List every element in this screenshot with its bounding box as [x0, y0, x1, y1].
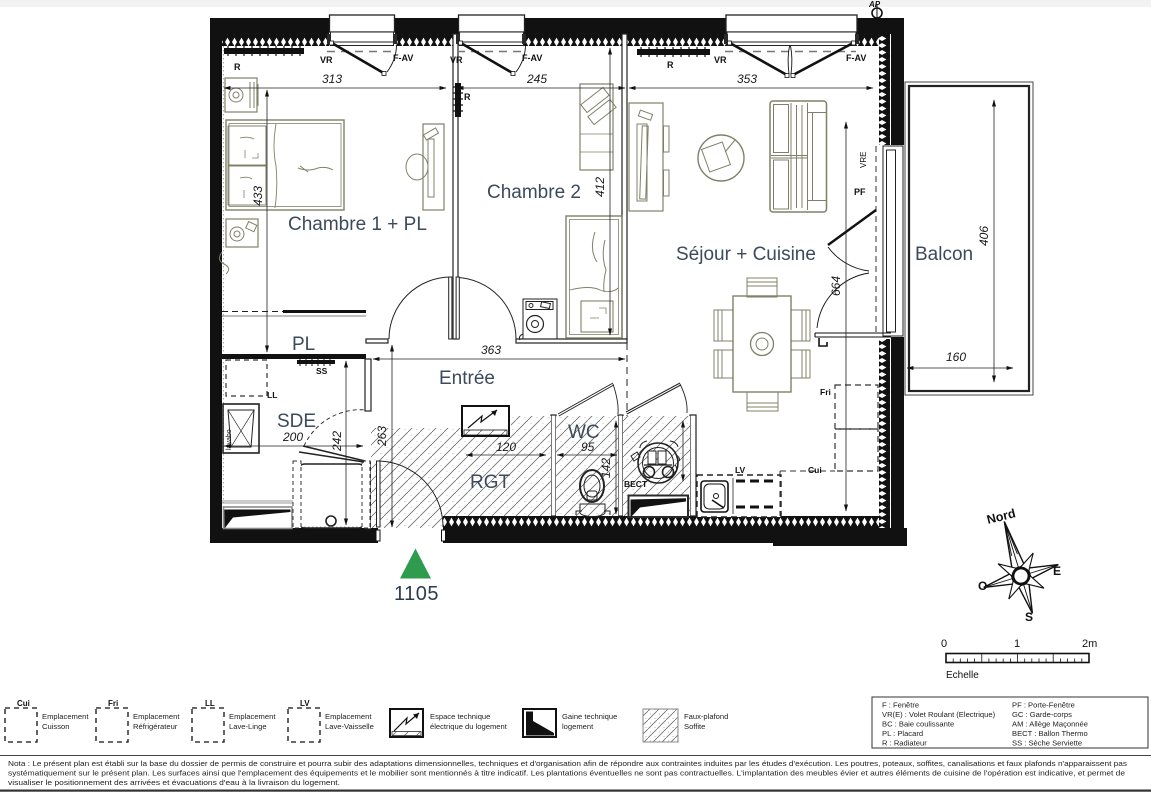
- svg-text:Fri: Fri: [820, 387, 831, 397]
- svg-text:353: 353: [737, 72, 757, 86]
- svg-text:LV: LV: [300, 699, 310, 708]
- svg-text:1105: 1105: [394, 583, 439, 605]
- svg-text:PF: PF: [854, 187, 866, 197]
- svg-text:0: 0: [941, 638, 947, 650]
- svg-text:SS: SS: [316, 366, 328, 376]
- svg-text:GC : Garde-corps: GC : Garde-corps: [1012, 710, 1072, 719]
- svg-text:SDE: SDE: [277, 411, 316, 432]
- svg-text:F-AV: F-AV: [846, 53, 866, 63]
- svg-text:242: 242: [330, 431, 344, 452]
- svg-text:Réfrigérateur: Réfrigérateur: [133, 722, 178, 731]
- svg-text:160: 160: [946, 350, 966, 364]
- svg-text:245: 245: [526, 72, 547, 86]
- svg-text:RGT: RGT: [470, 472, 511, 493]
- svg-text:664: 664: [829, 276, 843, 296]
- svg-text:200: 200: [282, 430, 303, 444]
- svg-text:Cui: Cui: [808, 465, 822, 475]
- svg-text:Echelle: Echelle: [946, 670, 979, 681]
- svg-text:Emplacement: Emplacement: [325, 712, 372, 721]
- svg-text:R: R: [667, 60, 674, 70]
- svg-text:S: S: [1025, 610, 1033, 624]
- svg-text:Cuisson: Cuisson: [42, 722, 69, 731]
- svg-text:Faux-plafond: Faux-plafond: [684, 712, 728, 721]
- svg-text:électrique du logement: électrique du logement: [430, 722, 508, 731]
- svg-text:120: 120: [496, 440, 516, 454]
- svg-text:Emplacement: Emplacement: [133, 712, 180, 721]
- svg-text:systématiquement sur le présen: systématiquement sur le présent plan. Le…: [8, 769, 1125, 778]
- svg-text:PL : Placard: PL : Placard: [882, 729, 923, 738]
- svg-text:LV: LV: [735, 465, 746, 475]
- svg-text:95: 95: [581, 440, 595, 454]
- svg-text:Chambre 1 + PL: Chambre 1 + PL: [288, 214, 427, 235]
- svg-text:Cui: Cui: [17, 699, 30, 708]
- svg-text:VR(E) : Volet Roulant (Electri: VR(E) : Volet Roulant (Electrique): [882, 710, 996, 719]
- svg-text:412: 412: [593, 177, 607, 197]
- svg-text:lavabo: lavabo: [226, 429, 233, 450]
- svg-text:VR: VR: [320, 55, 333, 65]
- svg-text:433: 433: [251, 186, 265, 206]
- svg-text:SS : Sèche Serviette: SS : Sèche Serviette: [1012, 739, 1082, 748]
- svg-text:VR: VR: [714, 55, 727, 65]
- svg-text:BECT: BECT: [624, 479, 648, 489]
- svg-text:Balcon: Balcon: [915, 244, 973, 265]
- svg-text:R: R: [464, 92, 471, 102]
- svg-text:313: 313: [322, 72, 342, 86]
- svg-text:F-AV: F-AV: [522, 53, 542, 63]
- svg-text:Nota : Le présent plan est éta: Nota : Le présent plan est établi sur la…: [8, 759, 1127, 768]
- svg-text:Emplacement: Emplacement: [229, 712, 276, 721]
- svg-text:E: E: [1053, 564, 1061, 578]
- svg-text:Espace technique: Espace technique: [430, 712, 490, 721]
- svg-text:1: 1: [1014, 638, 1020, 650]
- svg-text:Lave-Vaisselle: Lave-Vaisselle: [325, 722, 374, 731]
- svg-text:263: 263: [375, 426, 389, 447]
- svg-text:363: 363: [481, 343, 501, 357]
- svg-text:F : Fenêtre: F : Fenêtre: [882, 701, 919, 710]
- svg-text:Lave-Linge: Lave-Linge: [229, 722, 267, 731]
- svg-text:VRE: VRE: [859, 152, 868, 168]
- svg-text:logement: logement: [562, 722, 594, 731]
- svg-text:visualiser le positionnement d: visualiser le positionnement des arrivée…: [8, 778, 340, 787]
- svg-text:Emplacement: Emplacement: [42, 712, 89, 721]
- svg-text:Gaine technique: Gaine technique: [562, 712, 617, 721]
- svg-text:VR: VR: [450, 55, 463, 65]
- svg-text:2m: 2m: [1082, 638, 1097, 650]
- svg-text:LL: LL: [205, 699, 215, 708]
- svg-text:PF : Porte-Fenêtre: PF : Porte-Fenêtre: [1012, 701, 1075, 710]
- svg-text:AM : Allège Maçonnée: AM : Allège Maçonnée: [1012, 720, 1088, 729]
- svg-text:Séjour + Cuisine: Séjour + Cuisine: [676, 244, 816, 265]
- svg-text:Chambre 2: Chambre 2: [487, 182, 581, 203]
- svg-text:BECT : Ballon Thermo: BECT : Ballon Thermo: [1012, 729, 1088, 738]
- svg-text:Entrée: Entrée: [439, 368, 495, 389]
- svg-text:O: O: [978, 579, 987, 593]
- svg-text:142: 142: [599, 458, 613, 478]
- svg-text:F-AV: F-AV: [393, 53, 413, 63]
- svg-text:Fri: Fri: [108, 699, 118, 708]
- svg-text:406: 406: [977, 226, 991, 246]
- svg-text:BC : Baie coulissante: BC : Baie coulissante: [882, 720, 954, 729]
- svg-text:LL: LL: [267, 390, 277, 400]
- svg-text:Soffite: Soffite: [684, 722, 705, 731]
- svg-text:R : Radiateur: R : Radiateur: [882, 739, 927, 748]
- svg-text:AP: AP: [868, 0, 881, 9]
- svg-text:PL: PL: [292, 334, 315, 355]
- svg-text:R: R: [234, 62, 241, 72]
